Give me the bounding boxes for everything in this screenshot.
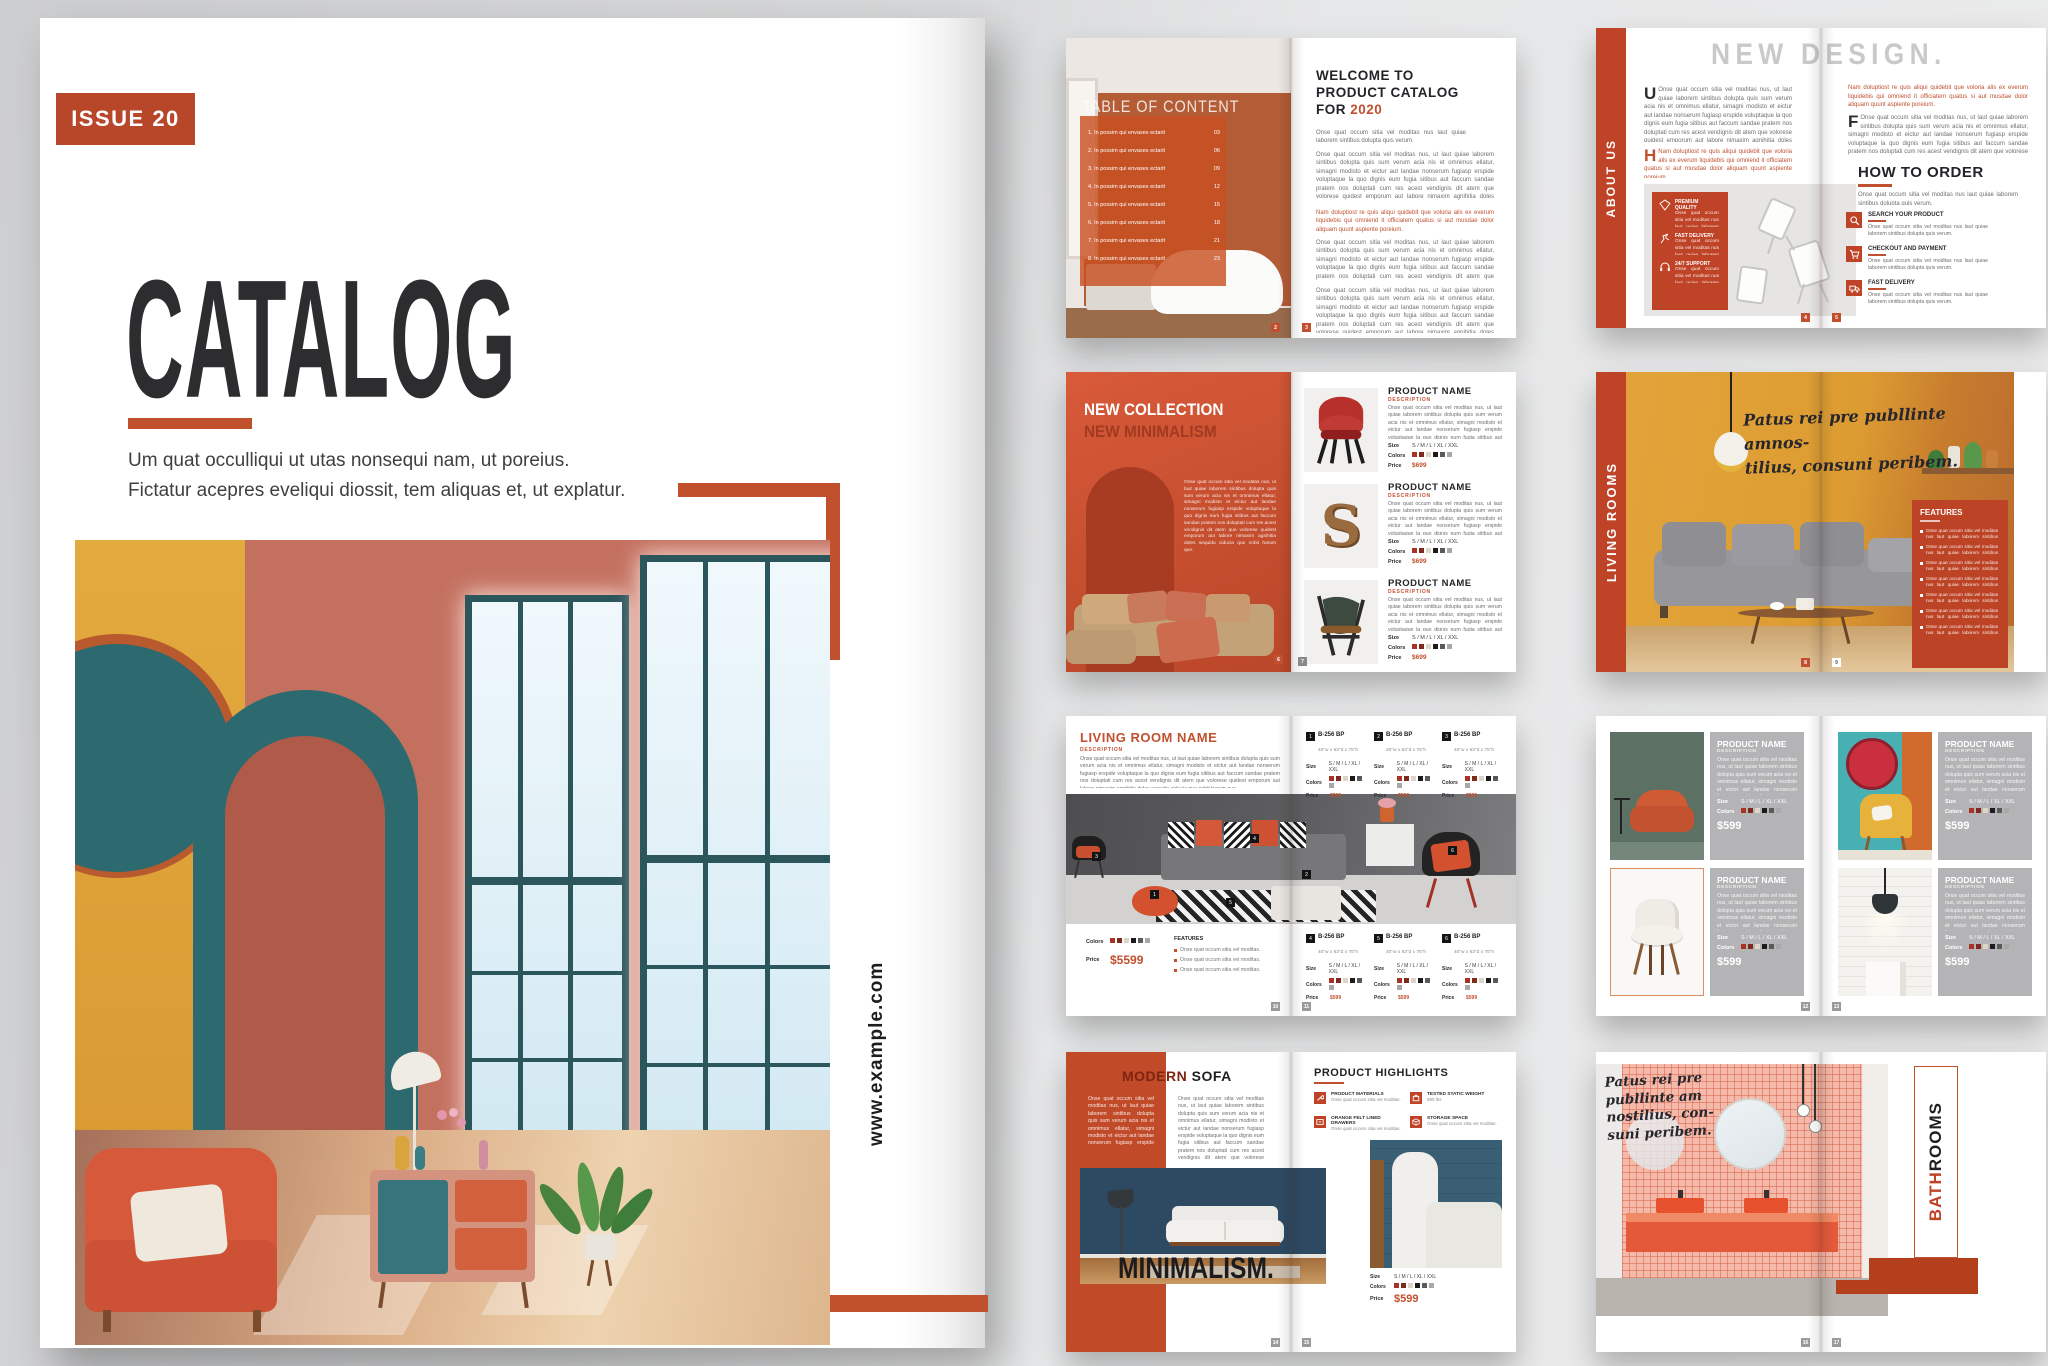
feature-bullet: Onse quat occum sitia vel moditas nus la… xyxy=(1926,560,1998,571)
cover-interior-photo xyxy=(75,540,830,1345)
highlight-value: 590 lbs xyxy=(1427,1097,1484,1102)
spec-block: 5B-256 BP40"w x 63"d x 75"h SizeS / M / … xyxy=(1374,934,1436,1001)
color-swatches xyxy=(1394,1283,1436,1290)
armchair-closeup-photo xyxy=(1370,1140,1502,1268)
color-swatches xyxy=(1412,548,1454,555)
page-number: 3 xyxy=(1302,323,1311,332)
page-number: 9 xyxy=(1832,658,1841,667)
toc-photo: TABLE OF CONTENT 1. In possim qui envase… xyxy=(1066,38,1291,338)
weight-icon xyxy=(1412,1094,1420,1102)
page-number: 17 xyxy=(1832,1338,1841,1347)
cover-title: CATALOG xyxy=(126,255,517,423)
product-name: PRODUCT NAME xyxy=(1388,578,1502,589)
welcome-paragraph-accent: Nam doluptiost re quis aliqui quidebit q… xyxy=(1316,209,1494,233)
spec-dims: 40"w x 63"d x 75"h xyxy=(1318,748,1358,753)
color-swatches xyxy=(1969,944,2011,951)
spec-block: 2B-256 BP40"w x 63"d x 75"h SizeS / M / … xyxy=(1374,732,1436,799)
main-product-colors: Colors Price$5599 xyxy=(1086,938,1152,967)
toc-item: In possim qui envases ectarit xyxy=(1094,148,1214,154)
welcome-paragraph: Onse quat occum sitia vel moditas nus, u… xyxy=(1316,151,1494,203)
order-intro: Onse quat occum sitia vel moditas nus la… xyxy=(1858,191,2018,205)
feature-bullet: Onse quat occum sitia vel moditas nus la… xyxy=(1926,528,1998,539)
color-swatches xyxy=(1110,938,1152,945)
product-row: S PRODUCT NAME DESCRIPTION Onse quat occ… xyxy=(1304,482,1502,574)
page-number: 8 xyxy=(1801,658,1810,667)
cart-icon xyxy=(1849,249,1860,260)
toc-item: In possim qui envases ectarit xyxy=(1094,166,1214,172)
highlights-title: PRODUCT HIGHLIGHTS xyxy=(1314,1067,1448,1079)
search-icon xyxy=(1849,215,1860,226)
cover-page: ISSUE 20 CATALOG Um quat occulliqui ut u… xyxy=(40,18,985,1348)
spec-block: 4B-256 BP40"w x 63"d x 75"h SizeS / M / … xyxy=(1306,934,1368,1001)
color-swatches xyxy=(1397,978,1436,992)
toc-item: In possim qui envases ectarit xyxy=(1094,220,1214,226)
living-room-title: LIVING ROOM NAME xyxy=(1080,730,1280,745)
photo-tag: 2 xyxy=(1302,870,1311,879)
collection-left-page: NEW COLLECTION NEW MINIMALISM Onse quat … xyxy=(1066,372,1291,672)
welcome-block: WELCOME TOPRODUCT CATALOG FOR 2020 Onse … xyxy=(1316,68,1494,333)
modern-sofa-title: MODERN SOFA xyxy=(1122,1068,1232,1084)
spec-block: 6B-256 BP40"w x 63"d x 75"h SizeS / M / … xyxy=(1442,934,1504,1001)
product-row: PRODUCT NAME DESCRIPTION Onse quat occum… xyxy=(1304,386,1502,478)
wrench-icon xyxy=(1316,1094,1324,1102)
living-room-header: LIVING ROOM NAME DESCRIPTION Onse quat o… xyxy=(1080,730,1280,788)
features-title: FEATURES xyxy=(1920,508,2000,517)
page-number: 2 xyxy=(1271,323,1280,332)
red-chair-photo xyxy=(1304,388,1378,472)
product-price: $599 xyxy=(1717,820,1797,832)
s-shelf-photo: S xyxy=(1321,493,1361,559)
color-swatches xyxy=(1412,452,1454,459)
spread-living-rooms: LIVING ROOMS Patus rei pre publlinte amn… xyxy=(1596,372,2046,672)
script-quote: Patus rei prepubllinte amnostilius, con-… xyxy=(1604,1069,1715,1145)
product-description-label: DESCRIPTION xyxy=(1388,397,1502,403)
page-number: 4 xyxy=(1801,313,1810,322)
feature-bullet: Onse quat occum sitia vel moditas nus la… xyxy=(1926,592,1998,603)
corner-bracket-top xyxy=(678,483,840,497)
feature-line: Onse quat occum sitia vel moditas. xyxy=(1180,967,1260,973)
sofa-specs: SizeS / M / L / XL / XXL Colors Price$59… xyxy=(1370,1274,1436,1305)
minimalism-word: MINIMALISM. xyxy=(1118,1252,1274,1286)
feature-bullet: Onse quat occum sitia vel moditas nus la… xyxy=(1926,544,1998,555)
features-title: FEATURES xyxy=(1174,936,1260,942)
sofa-text-right: Onse quat occum sitia vel moditas nus, u… xyxy=(1178,1096,1264,1162)
color-swatches xyxy=(1329,776,1368,790)
photo-tag: 4 xyxy=(1250,834,1259,843)
toc-item: In possim qui envases ectarit xyxy=(1094,130,1214,136)
headset-icon xyxy=(1659,261,1671,273)
website-vertical-text: www.example.com xyxy=(866,906,888,1146)
about-paragraph-accent: HNam doluptiost re quis aliqui quidebit … xyxy=(1644,148,1792,178)
page-number: 16 xyxy=(1801,1338,1810,1347)
color-swatches xyxy=(1741,944,1783,951)
orange-armchair-photo xyxy=(1610,732,1704,860)
product-card: PRODUCT NAME DESCRIPTION Onse quat occum… xyxy=(1938,732,2032,860)
script-quote: Patus rei pre publlinte amnos-tilius, co… xyxy=(1743,399,2014,480)
new-design-title: NEW DESIGN. xyxy=(1711,38,1947,72)
tagline-line2: Fictatur acepres eveliqui diossit, tem a… xyxy=(128,476,625,506)
spread-about-order: ABOUT US NEW DESIGN. UOnse quat occum si… xyxy=(1596,28,2046,328)
lounge-chair-photo xyxy=(1304,580,1378,664)
photo-tag: 3 xyxy=(1092,852,1101,861)
page-number: 12 xyxy=(1801,1002,1810,1011)
toc-item: In possim qui envases ectarit xyxy=(1094,238,1214,244)
color-swatches xyxy=(1465,978,1504,992)
spread-product-grid: PRODUCT NAME DESCRIPTION Onse quat occum… xyxy=(1596,716,2046,1016)
title-underline xyxy=(128,418,252,429)
features-panel: PREMIUM QUALITY Onse quat occum sitia ve… xyxy=(1652,192,1728,310)
feature-bullet: Onse quat occum sitia vel moditas nus la… xyxy=(1926,624,1998,635)
feature-bullet: Onse quat occum sitia vel moditas nus la… xyxy=(1926,576,1998,587)
feature-line: Onse quat occum sitia vel moditas. xyxy=(1180,947,1260,953)
bathrooms-label-box: BATHROOMS xyxy=(1914,1066,1958,1258)
spread-living-room-name: LIVING ROOM NAME DESCRIPTION Onse quat o… xyxy=(1066,716,1516,1016)
runner-icon xyxy=(1659,233,1671,245)
spec-block: 1B-256 BP40"w x 63"d x 75"h SizeS / M / … xyxy=(1306,732,1368,799)
about-paragraph: UOnse quat occum sitia vel moditas nus, … xyxy=(1644,86,1792,142)
diamond-icon xyxy=(1659,199,1671,211)
welcome-paragraph: Onse quat occum sitia vel moditas nus, u… xyxy=(1316,287,1494,333)
product-row: PRODUCT NAME DESCRIPTION Onse quat occum… xyxy=(1304,578,1502,670)
toc-item: In possim qui envases ectarit xyxy=(1094,202,1214,208)
sofa-price: $599 xyxy=(1394,1293,1418,1305)
color-swatches xyxy=(1465,776,1504,790)
welcome-year: 2020 xyxy=(1350,102,1382,117)
product-price: $699 xyxy=(1412,654,1426,661)
photo-tag: 1 xyxy=(1150,890,1159,899)
product-name: PRODUCT NAME xyxy=(1388,386,1502,397)
color-swatches xyxy=(1397,776,1436,790)
page-number: 11 xyxy=(1302,1002,1311,1011)
pendant-lamp-photo xyxy=(1838,868,1932,996)
page-number: 15 xyxy=(1302,1338,1311,1347)
yellow-armchair-photo xyxy=(1838,732,1932,860)
how-to-order-title: HOW TO ORDER xyxy=(1858,164,1984,181)
toc-title: TABLE OF CONTENT xyxy=(1082,98,1239,117)
collection-text: Onse quat occum sitia vel moditas nus, u… xyxy=(1184,480,1276,558)
page-number: 10 xyxy=(1271,1002,1280,1011)
cover-tagline: Um quat occulliqui ut utas nonsequi nam,… xyxy=(128,446,625,507)
page-number: 6 xyxy=(1274,655,1283,664)
white-chair-photo xyxy=(1610,868,1704,996)
color-swatches xyxy=(1741,808,1783,815)
color-swatches xyxy=(1329,978,1368,992)
living-room-photo: 1 2 3 4 5 6 xyxy=(1066,794,1516,924)
photo-tag: 6 xyxy=(1448,846,1457,855)
order-title-rule xyxy=(1858,184,1892,187)
sofa-photo xyxy=(1066,590,1291,672)
main-price: $5599 xyxy=(1110,953,1143,967)
highlight-item: ORANGE FELT LINED DRAWERSOnse quat occum… xyxy=(1314,1116,1406,1131)
features-list: FEATURES Onse quat occum sitia vel modit… xyxy=(1174,936,1260,973)
spread-new-collection: NEW COLLECTION NEW MINIMALISM Onse quat … xyxy=(1066,372,1516,672)
about-us-sidebar: ABOUT US xyxy=(1604,139,1618,218)
living-rooms-sidebar: LIVING ROOMS xyxy=(1604,462,1619,582)
page-number: 5 xyxy=(1832,313,1841,322)
step-label: CHECKOUT AND PAYMENT xyxy=(1868,246,1988,252)
order-paragraph-accent: Nam doluptiost re quis aliqui quidebit q… xyxy=(1848,84,2028,108)
spec-model: B-256 BP xyxy=(1318,732,1358,738)
box-icon xyxy=(1412,1118,1420,1126)
order-step: SEARCH YOUR PRODUCT Onse quat occum siti… xyxy=(1846,212,1988,237)
product-card: PRODUCT NAME DESCRIPTION Onse quat occum… xyxy=(1710,732,1804,860)
product-price: $699 xyxy=(1412,462,1426,469)
feature-bullet: Onse quat occum sitia vel moditas nus la… xyxy=(1926,608,1998,619)
welcome-intro: Onse quat occum sitia vel moditas nus la… xyxy=(1316,129,1466,145)
features-panel: FEATURES Onse quat occum sitia vel modit… xyxy=(1912,500,2008,668)
spec-block: 3B-256 BP40"w x 63"d x 75"h SizeS / M / … xyxy=(1442,732,1504,799)
product-card: PRODUCT NAME DESCRIPTION Onse quat occum… xyxy=(1710,868,1804,996)
page-number: 13 xyxy=(1832,1002,1841,1011)
tagline-line1: Um quat occulliqui ut utas nonsequi nam,… xyxy=(128,446,625,476)
step-label: SEARCH YOUR PRODUCT xyxy=(1868,212,1988,218)
spread-bathrooms: Patus rei prepubllinte amnostilius, con-… xyxy=(1596,1052,2046,1352)
photo-tag: 5 xyxy=(1226,898,1235,907)
highlight-item: TESTED STATIC WEIGHT590 lbs xyxy=(1410,1092,1502,1104)
highlight-item: STORAGE SPACEOnse quat occum sitia vel m… xyxy=(1410,1116,1502,1128)
drawer-icon xyxy=(1316,1118,1324,1126)
step-block xyxy=(1869,1258,1978,1280)
welcome-heading: WELCOME TOPRODUCT CATALOG FOR 2020 xyxy=(1316,68,1494,119)
step-label: FAST DELIVERY xyxy=(1868,280,1988,286)
product-card: PRODUCT NAME DESCRIPTION Onse quat occum… xyxy=(1938,868,2032,996)
issue-badge: ISSUE 20 xyxy=(56,93,195,145)
order-step: CHECKOUT AND PAYMENT Onse quat occum sit… xyxy=(1846,246,1988,271)
product-name: PRODUCT NAME xyxy=(1717,739,1797,749)
issue-label: ISSUE 20 xyxy=(71,106,180,132)
collection-headline: NEW COLLECTION xyxy=(1084,400,1223,420)
product-name: PRODUCT NAME xyxy=(1388,482,1502,493)
feature-line: Onse quat occum sitia vel moditas. xyxy=(1180,957,1260,963)
order-paragraph: FOnse quat occum sitia vel moditas nus, … xyxy=(1848,114,2028,156)
spec-price: $599 xyxy=(1330,793,1341,799)
welcome-paragraph: Onse quat occum sitia vel moditas nus, u… xyxy=(1316,239,1494,281)
page-number: 14 xyxy=(1271,1338,1280,1347)
toc-item: In possim qui envases ectarit xyxy=(1094,184,1214,190)
color-swatches xyxy=(1969,808,2011,815)
order-step: FAST DELIVERY Onse quat occum sitia vel … xyxy=(1846,280,1988,305)
sofa-text-left: Onse quat occum sitia vel moditas nus, u… xyxy=(1088,1096,1154,1148)
bathroom-photo: Patus rei prepubllinte amnostilius, con-… xyxy=(1596,1064,1888,1316)
step-block xyxy=(1836,1280,1978,1294)
color-swatches xyxy=(1412,644,1454,651)
collection-subheadline: NEW MINIMALISM xyxy=(1084,422,1217,442)
bathrooms-vertical-title: BATHROOMS xyxy=(1926,1102,1946,1221)
page-number: 7 xyxy=(1298,657,1307,666)
spread-toc-welcome: TABLE OF CONTENT 1. In possim qui envase… xyxy=(1066,38,1516,338)
product-price: $699 xyxy=(1412,558,1426,565)
product-text: Onse quat occum sitia vel moditas nus, u… xyxy=(1388,405,1502,439)
truck-icon xyxy=(1849,283,1860,294)
highlight-item: PRODUCT MATERIALSOnse quat occum sitia v… xyxy=(1314,1092,1406,1104)
spread-modern-sofa: MODERN SOFA Onse quat occum sitia vel mo… xyxy=(1066,1052,1516,1352)
toc-item: In possim qui envases ectarit xyxy=(1094,256,1214,262)
feature-title: PREMIUM QUALITY xyxy=(1675,199,1721,211)
toc-list: 1. In possim qui envases ectarit03 2. In… xyxy=(1088,130,1220,262)
